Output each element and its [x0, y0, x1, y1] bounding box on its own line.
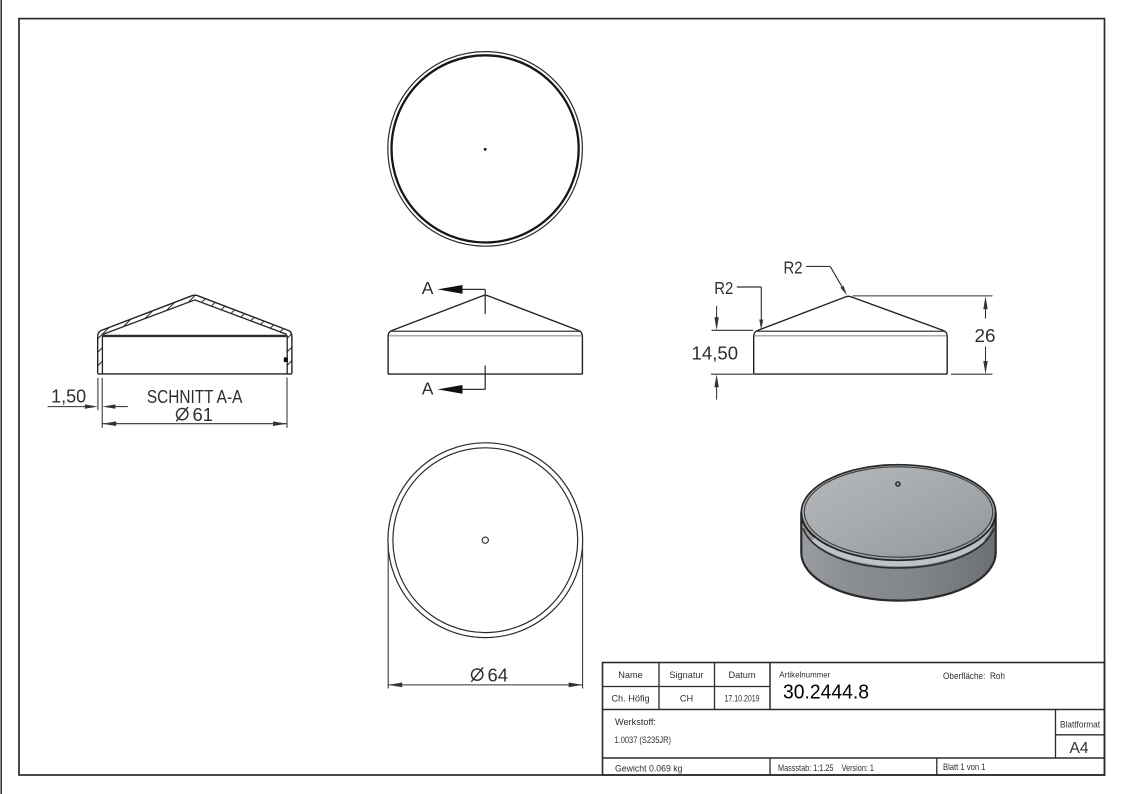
svg-text:R2: R2 [784, 257, 803, 277]
svg-text:Massstab: 1:1.25 Version: 1: Massstab: 1:1.25 Version: 1 [778, 763, 874, 773]
svg-text:Blattformat: Blattformat [1060, 719, 1100, 729]
svg-text:17.10.2019: 17.10.2019 [725, 693, 760, 703]
svg-text:30.2444.8: 30.2444.8 [783, 680, 869, 703]
svg-text:61: 61 [193, 404, 214, 425]
svg-text:R2: R2 [714, 278, 733, 298]
svg-text:CH: CH [680, 693, 693, 703]
svg-text:64: 64 [488, 664, 509, 685]
svg-text:Werkstoff:: Werkstoff: [615, 717, 656, 727]
svg-text:Artikelnummer: Artikelnummer [779, 669, 830, 679]
svg-text:1.0037 (S235JR): 1.0037 (S235JR) [615, 735, 672, 745]
svg-text:Ch. Höfig: Ch. Höfig [611, 693, 649, 703]
svg-text:26: 26 [975, 325, 996, 346]
svg-text:A4: A4 [1070, 740, 1089, 757]
svg-text:Oberfläche: Roh: Oberfläche: Roh [943, 671, 1005, 681]
svg-text:14,50: 14,50 [692, 342, 739, 363]
svg-text:Signatur: Signatur [669, 670, 703, 680]
svg-text:A: A [422, 378, 434, 398]
svg-text:Datum: Datum [728, 670, 755, 680]
svg-text:A: A [422, 278, 434, 298]
svg-text:Blatt 1 von 1: Blatt 1 von 1 [943, 762, 986, 772]
svg-text:Name: Name [618, 670, 643, 680]
svg-text:1,50: 1,50 [51, 386, 86, 407]
svg-text:Gewicht 0.069 kg: Gewicht 0.069 kg [615, 763, 683, 773]
